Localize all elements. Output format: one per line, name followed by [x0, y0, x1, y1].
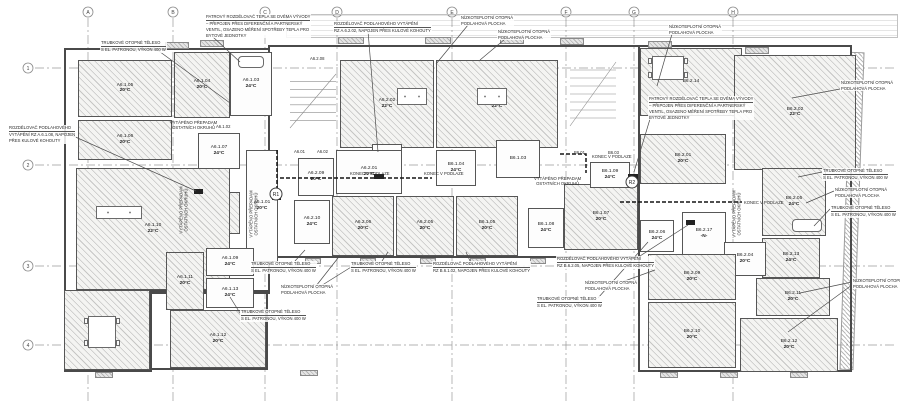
plan-code-label: A6.02: [317, 149, 328, 154]
note-line: OSTATNÍCH OKRUHŮ: [254, 190, 259, 237]
annotation-line: PODLAHOVÁ PLOCHA: [835, 193, 887, 199]
plan-code-label: KONEC V PODLAZE: [350, 171, 390, 176]
annotation-line: S EL. PATRONOU, VÝKON 400 W: [251, 268, 316, 274]
annotation-line: – PŘIPOJEN PŘES DIFERENČNÍ A PARTNERSKÝ: [649, 103, 753, 109]
plan-code-label: A6.2.08: [310, 56, 324, 61]
plan-code-label: A6.1.02: [216, 124, 230, 129]
annotation-line: PODLAHOVÁ PLOCHA: [281, 290, 333, 296]
annotation-note: NÍZKOTEPLOTNÍ OTOPNÁPODLAHOVÁ PLOCHA: [460, 15, 514, 26]
annotation-line: RZ B.6.1.02, NAPOJEN PŘES KULOVÉ KOHOUTY: [433, 268, 530, 274]
annotation-line: PATROVÝ ROZDĚLOVAČ TEPLA SE DVĚMA VÝVODY: [206, 14, 310, 21]
annotation-note: TRUBKOVÉ OTOPNÉ TĚLESOS EL. PATRONOU, VÝ…: [822, 168, 889, 181]
annotation-line: S EL. PATRONOU, VÝKON 400 W: [831, 212, 896, 218]
annotation-line: TRUBKOVÉ OTOPNÉ TĚLESO: [537, 296, 602, 303]
annotation-line: TRUBKOVÉ OTOPNÉ TĚLESO: [351, 261, 416, 268]
annotation-line: TRUBKOVÉ OTOPNÉ TĚLESO: [241, 309, 306, 316]
note-line: OSTATNÍCH OKRUHŮ: [534, 181, 581, 186]
annotation-line: PŘES KULOVÉ KOHOUTY: [9, 138, 75, 144]
annotation-line: TRUBKOVÉ OTOPNÉ TĚLESO: [101, 40, 166, 47]
annotation-line: VYTÁPĚNÍ RZ A.6.1.08, NAPOJEN: [9, 132, 75, 138]
annotation-line: ROZDĚLOVAČ PODLAHOVÉHO VYTÁPĚNÍ: [433, 261, 530, 268]
annotation-line: S EL. PATRONOU, VÝKON 400 W: [823, 175, 888, 181]
plan-code-label: KONEC V PODLAZE: [744, 200, 784, 205]
annotation-line: ROZDĚLOVAČ PODLAHOVÉHO: [9, 125, 75, 132]
annotation-line: PODLAHOVÁ PLOCHA: [461, 21, 513, 27]
room-heating-note: VYTÁPĚNO PŘEPADAMOSTATNÍCH OKRUHŮ: [732, 190, 743, 237]
annotation-line: RZ A.6.2.02, NAPOJEN PŘES KULOVÉ KOHOUTY: [334, 28, 431, 34]
annotation-note: TRUBKOVÉ OTOPNÉ TĚLESOS EL. PATRONOU, VÝ…: [240, 309, 307, 322]
annotation-line: PODLAHOVÁ PLOCHA: [498, 35, 550, 41]
text-layer: TRUBKOVÉ OTOPNÉ TĚLESOS EL. PATRONOU, VÝ…: [0, 0, 900, 418]
annotation-note: NÍZKOTEPLOTNÍ OTOPNÁPODLAHOVÁ PLOCHA: [584, 280, 638, 291]
annotation-note: TRUBKOVÉ OTOPNÉ TĚLESOS EL. PATRONOU, VÝ…: [250, 261, 317, 274]
annotation-line: ROZDĚLOVAČ PODLAHOVÉHO VYTÁPĚNÍ: [557, 256, 654, 263]
annotation-line: PODLAHOVÁ PLOCHA: [841, 86, 893, 92]
annotation-line: TRUBKOVÉ OTOPNÉ TĚLESO: [823, 168, 888, 175]
annotation-line: NÍZKOTEPLOTNÍ OTOPNÁ: [585, 280, 637, 286]
annotation-line: VENTIL, OSAZENO MĚŘENÍ SPOTŘEBY TEPLA PR…: [649, 109, 753, 115]
annotation-line: PATROVÝ ROZDĚLOVAČ TEPLA SE DVĚMA VÝVODY: [649, 96, 753, 103]
plan-code-label: KONEC V PODLAZE: [592, 154, 632, 159]
annotation-line: S EL. PATRONOU, VÝKON 400 W: [101, 47, 166, 53]
room-heating-note: VYTÁPĚNO PŘEPADAMOSTATNÍCH OKRUHŮ: [179, 186, 190, 233]
annotation-line: BYTOVÉ JEDNOTKY: [206, 33, 310, 39]
annotation-line: NÍZKOTEPLOTNÍ OTOPNÁ: [669, 24, 721, 30]
annotation-line: NÍZKOTEPLOTNÍ OTOPNÁ: [841, 80, 893, 86]
plan-code-label: KONEC V PODLAZE: [424, 171, 464, 176]
note-line: OSTATNÍCH OKRUHŮ: [184, 186, 189, 233]
annotation-line: BYTOVÉ JEDNOTKY: [649, 115, 753, 121]
note-line: OSTATNÍCH OKRUHŮ: [737, 190, 742, 237]
annotation-line: NÍZKOTEPLOTNÍ OTOPNÁ: [498, 29, 550, 35]
annotation-note: NÍZKOTEPLOTNÍ OTOPNÁPODLAHOVÁ PLOCHA: [834, 187, 888, 198]
annotation-note: TRUBKOVÉ OTOPNÉ TĚLESOS EL. PATRONOU, VÝ…: [350, 261, 417, 274]
annotation-line: – PŘIPOJEN PŘES DIFERENČNÍ A PARTNERSKÝ: [206, 21, 310, 27]
annotation-note: NÍZKOTEPLOTNÍ OTOPNÁPODLAHOVÁ PLOCHA: [497, 29, 551, 40]
room-heating-note: VYTÁPĚNO PŘEPADAMOSTATNÍCH OKRUHŮ: [534, 176, 581, 187]
annotation-line: S EL. PATRONOU, VÝKON 400 W: [351, 268, 416, 274]
annotation-note: PATROVÝ ROZDĚLOVAČ TEPLA SE DVĚMA VÝVODY…: [205, 14, 311, 38]
annotation-note: NÍZKOTEPLOTNÍ OTOPNÁPODLAHOVÁ PLOCHA: [280, 284, 334, 295]
annotation-line: PODLAHOVÁ PLOCHA: [853, 284, 900, 290]
annotation-note: ROZDĚLOVAČ PODLAHOVÉHO VYTÁPĚNÍRZ B.6.2.…: [556, 256, 655, 269]
room-heating-note: VYTÁPĚNO PŘEPADAMOSTATNÍCH OKRUHŮ: [249, 190, 260, 237]
annotation-line: NÍZKOTEPLOTNÍ OTOPNÁ: [281, 284, 333, 290]
annotation-line: S EL. PATRONOU, VÝKON 400 W: [537, 303, 602, 309]
annotation-line: PODLAHOVÁ PLOCHA: [669, 30, 721, 36]
annotation-line: RZ B.6.2.05, NAPOJEN PŘES KULOVÉ KOHOUTY: [557, 263, 654, 269]
annotation-note: NÍZKOTEPLOTNÍ OTOPNÁPODLAHOVÁ PLOCHA: [852, 278, 900, 289]
plan-code-label: A6.01: [294, 149, 305, 154]
annotation-note: TRUBKOVÉ OTOPNÉ TĚLESOS EL. PATRONOU, VÝ…: [100, 40, 167, 53]
floor-plan: ABCDEFGH1234 A6.1.0520°CA6.1.0420°CA6.1.…: [0, 0, 900, 418]
annotation-line: VENTIL, OSAZENO MĚŘENÍ SPOTŘEBY TEPLA PR…: [206, 27, 310, 33]
annotation-note: TRUBKOVÉ OTOPNÉ TĚLESOS EL. PATRONOU, VÝ…: [536, 296, 603, 309]
annotation-line: TRUBKOVÉ OTOPNÉ TĚLESO: [251, 261, 316, 268]
annotation-note: ROZDĚLOVAČ PODLAHOVÉHOVYTÁPĚNÍ RZ A.6.1.…: [8, 125, 76, 144]
annotation-note: NÍZKOTEPLOTNÍ OTOPNÁPODLAHOVÁ PLOCHA: [840, 80, 894, 91]
annotation-line: NÍZKOTEPLOTNÍ OTOPNÁ: [835, 187, 887, 193]
annotation-line: NÍZKOTEPLOTNÍ OTOPNÁ: [853, 278, 900, 284]
annotation-note: ROZDĚLOVAČ PODLAHOVÉHO VYTÁPĚNÍRZ B.6.1.…: [432, 261, 531, 274]
annotation-note: TRUBKOVÉ OTOPNÉ TĚLESOS EL. PATRONOU, VÝ…: [830, 205, 897, 218]
annotation-line: S EL. PATRONOU, VÝKON 400 W: [241, 316, 306, 322]
annotation-line: ROZDĚLOVAČ PODLAHOVÉHO VYTÁPĚNÍ: [334, 21, 431, 28]
annotation-note: ROZDĚLOVAČ PODLAHOVÉHO VYTÁPĚNÍRZ A.6.2.…: [333, 21, 432, 34]
note-line: OSTATNÍCH OKRUHŮ: [170, 125, 217, 130]
annotation-note: PATROVÝ ROZDĚLOVAČ TEPLA SE DVĚMA VÝVODY…: [648, 96, 754, 120]
plan-code-label: B6.01: [574, 150, 585, 155]
annotation-line: NÍZKOTEPLOTNÍ OTOPNÁ: [461, 15, 513, 21]
annotation-note: NÍZKOTEPLOTNÍ OTOPNÁPODLAHOVÁ PLOCHA: [668, 24, 722, 35]
room-heating-note: VYTÁPĚNO PŘEPADAMOSTATNÍCH OKRUHŮ: [170, 120, 217, 131]
annotation-line: PODLAHOVÁ PLOCHA: [585, 286, 637, 292]
annotation-line: TRUBKOVÉ OTOPNÉ TĚLESO: [831, 205, 896, 212]
